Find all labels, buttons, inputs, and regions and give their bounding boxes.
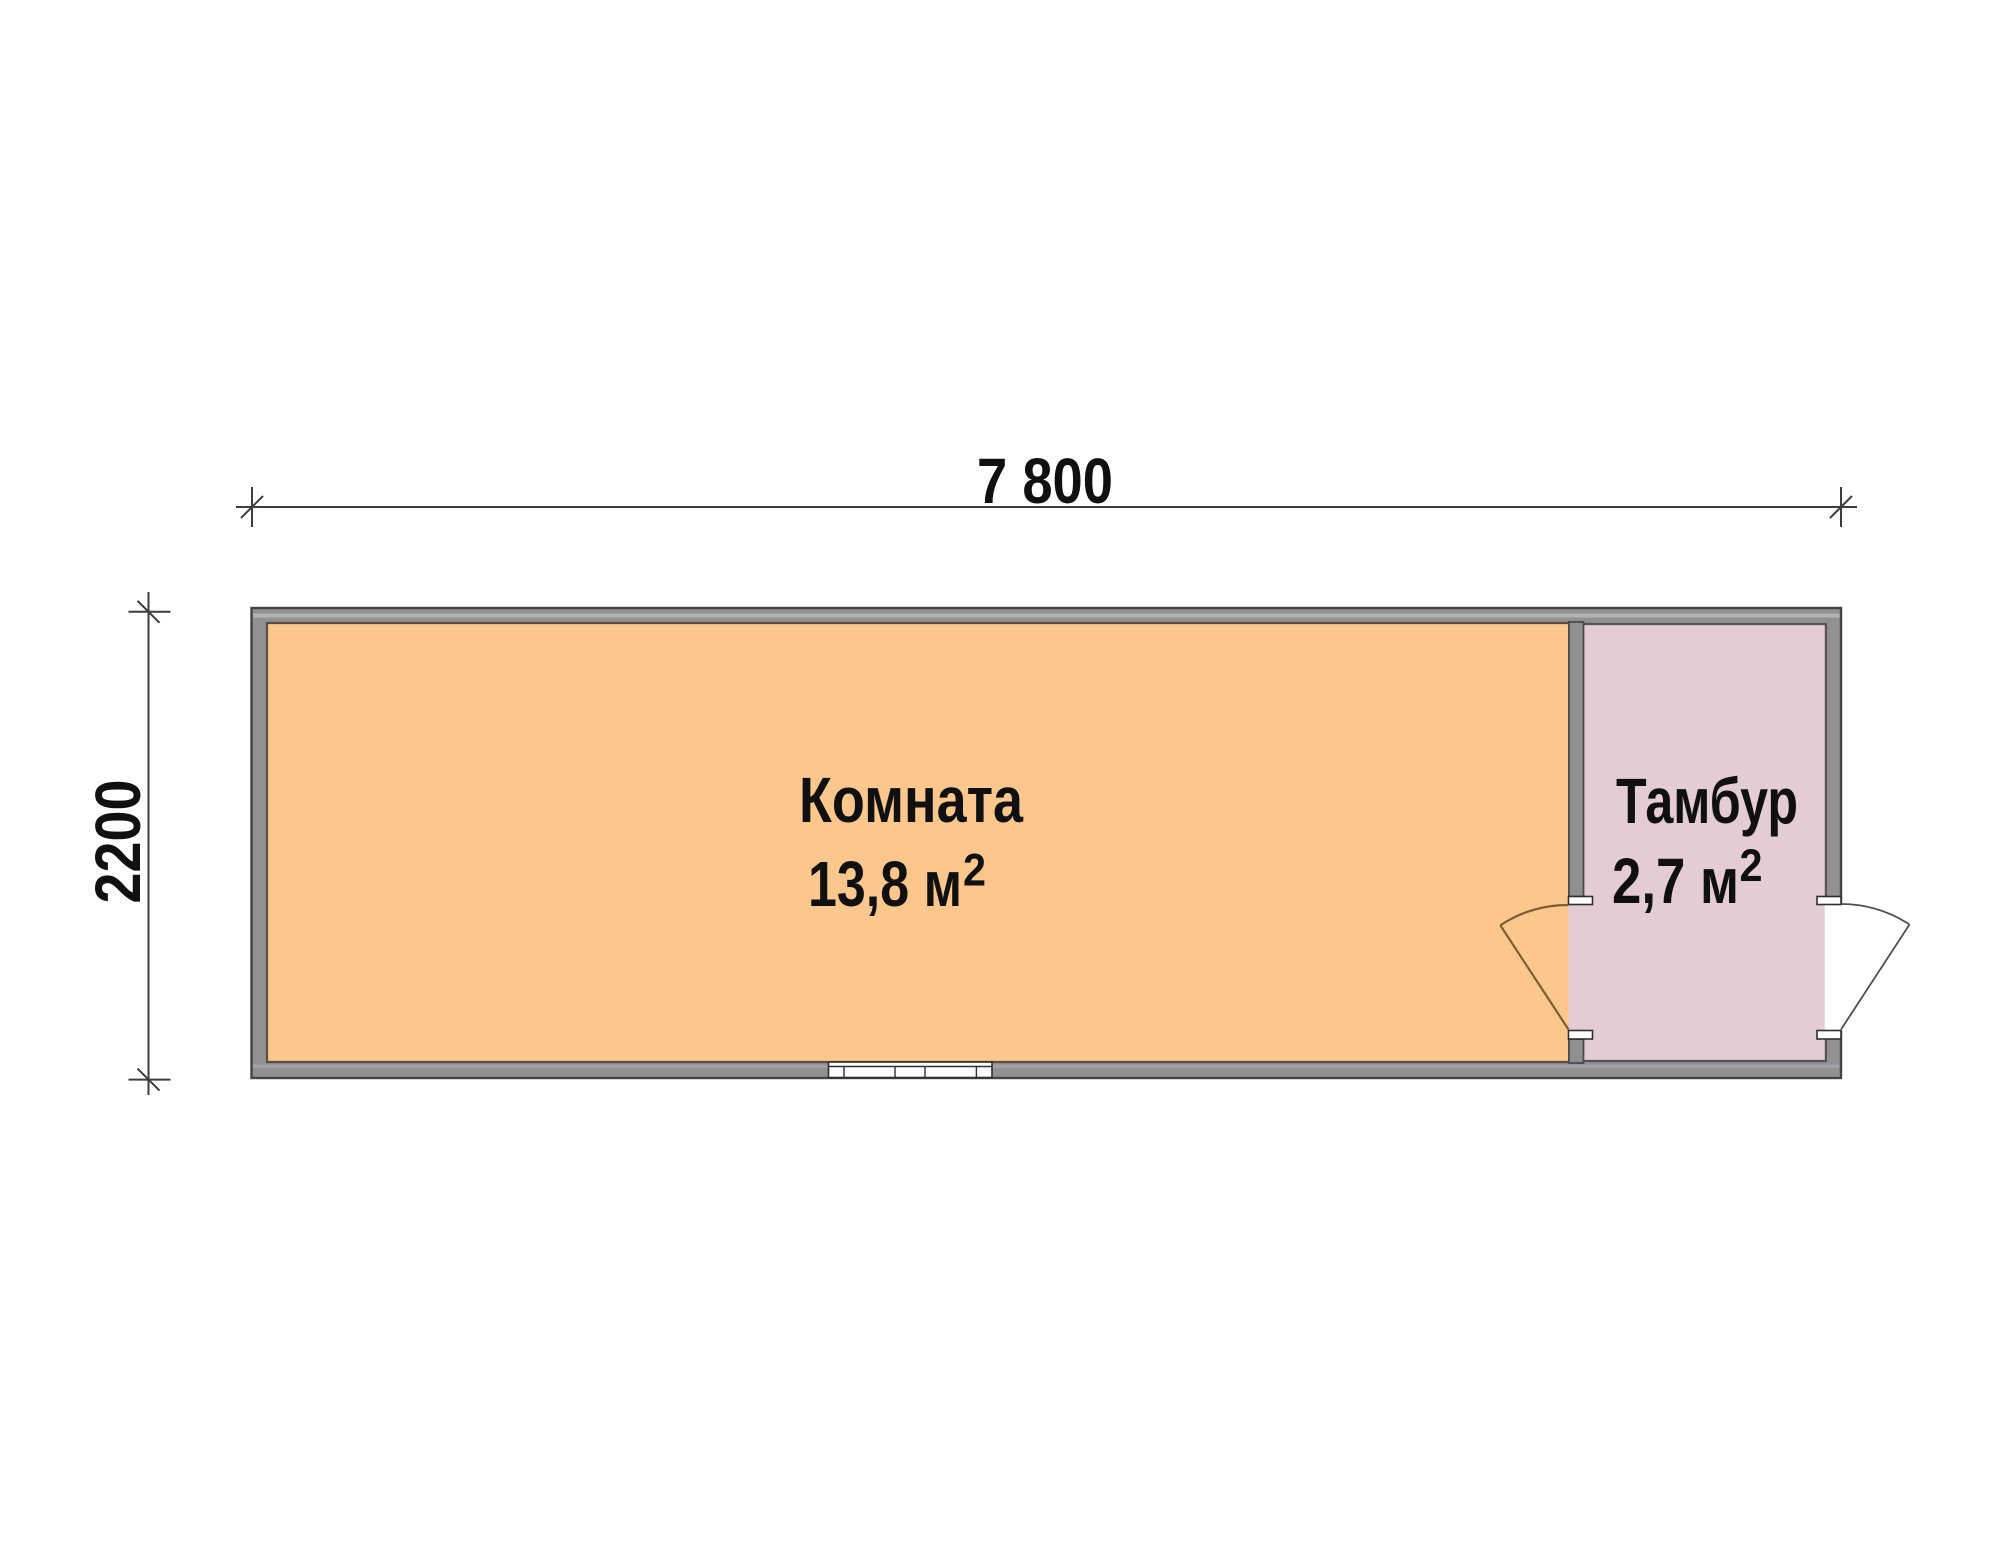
svg-text:2,7 м: 2,7 м [1612,845,1739,917]
svg-text:2200: 2200 [82,780,154,904]
svg-text:7 800: 7 800 [977,445,1113,517]
svg-text:2: 2 [1740,840,1763,891]
svg-text:Комната: Комната [799,764,1023,836]
svg-text:2: 2 [963,845,986,896]
svg-text:13,8 м: 13,8 м [808,848,962,920]
svg-text:Тамбур: Тамбур [1616,765,1798,837]
